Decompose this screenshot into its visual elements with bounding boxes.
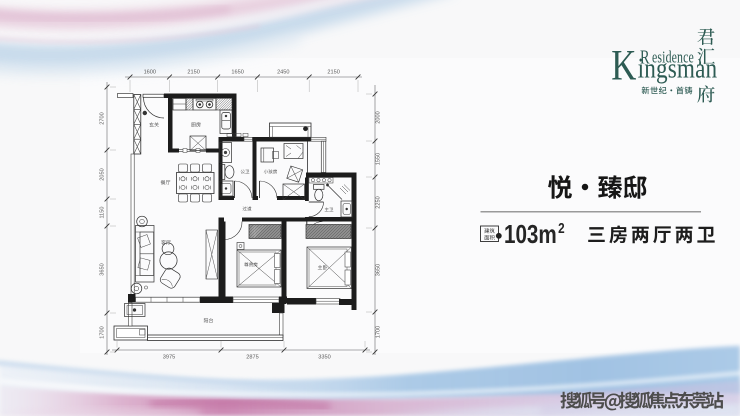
svg-text:2875: 2875 — [246, 355, 258, 361]
svg-text:1600: 1600 — [144, 70, 156, 76]
svg-text:1700: 1700 — [376, 326, 382, 338]
svg-text:3650: 3650 — [100, 263, 106, 275]
svg-text:2700: 2700 — [100, 112, 106, 124]
svg-text:K: K — [611, 41, 637, 90]
svg-text:2450: 2450 — [277, 70, 289, 76]
svg-text:2000: 2000 — [376, 111, 382, 123]
svg-text:1700: 1700 — [100, 326, 106, 338]
svg-text:2250: 2250 — [376, 196, 382, 208]
svg-text:1650: 1650 — [231, 70, 243, 76]
svg-text:103m: 103m — [504, 220, 557, 249]
svg-text:3975: 3975 — [163, 355, 175, 361]
svg-text:3350: 3350 — [318, 355, 330, 361]
svg-text:1150: 1150 — [100, 206, 106, 218]
svg-text:2150: 2150 — [327, 70, 339, 76]
svg-text:R: R — [640, 45, 650, 68]
svg-text:2: 2 — [558, 220, 565, 236]
svg-text:2050: 2050 — [100, 168, 106, 180]
svg-text:esidence: esidence — [652, 49, 694, 67]
svg-text:3650: 3650 — [376, 264, 382, 276]
svg-text:2150: 2150 — [187, 70, 199, 76]
svg-text:1550: 1550 — [376, 153, 382, 165]
